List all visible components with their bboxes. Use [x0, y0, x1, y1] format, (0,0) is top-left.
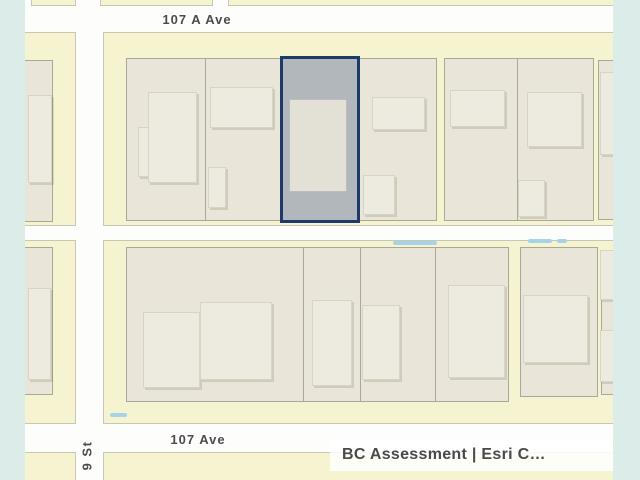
street-label-107-ave: 107 Ave: [138, 432, 258, 447]
building: [289, 99, 347, 192]
city-block: [25, 452, 76, 480]
building: [28, 95, 52, 183]
building: [208, 167, 226, 208]
building: [450, 90, 505, 127]
building: [363, 175, 395, 215]
street-label-107a-ave: 107 A Ave: [137, 12, 257, 27]
street-label-9-st: 9 St: [80, 432, 95, 480]
building: [200, 302, 272, 380]
building: [28, 288, 51, 380]
city-block: [100, 0, 213, 6]
water-dash: [528, 239, 552, 243]
building: [362, 305, 400, 380]
building: [600, 72, 613, 155]
building: [148, 92, 197, 183]
building: [210, 87, 273, 128]
building: [448, 285, 505, 378]
building: [527, 92, 582, 147]
page: { "map": { "street_labels": { "top": "10…: [0, 0, 640, 480]
city-block: [31, 0, 76, 6]
building: [312, 300, 352, 386]
water-dash: [557, 239, 567, 243]
building: [372, 97, 425, 130]
map-attribution[interactable]: BC Assessment | Esri C…: [330, 439, 613, 471]
water-dash: [393, 241, 437, 245]
building: [600, 330, 613, 382]
city-block: [228, 0, 613, 6]
water-dash: [110, 413, 127, 417]
building: [143, 312, 200, 388]
attribution-text: BC Assessment | Esri C…: [342, 446, 546, 464]
map-canvas[interactable]: 12944 107 A Ave 107 Ave 9 St BC Assessme…: [25, 0, 613, 480]
building: [600, 250, 613, 300]
highlighted-parcel[interactable]: 12944: [280, 56, 360, 223]
building: [523, 295, 588, 363]
building: [518, 180, 545, 217]
parcel[interactable]: [444, 58, 518, 221]
